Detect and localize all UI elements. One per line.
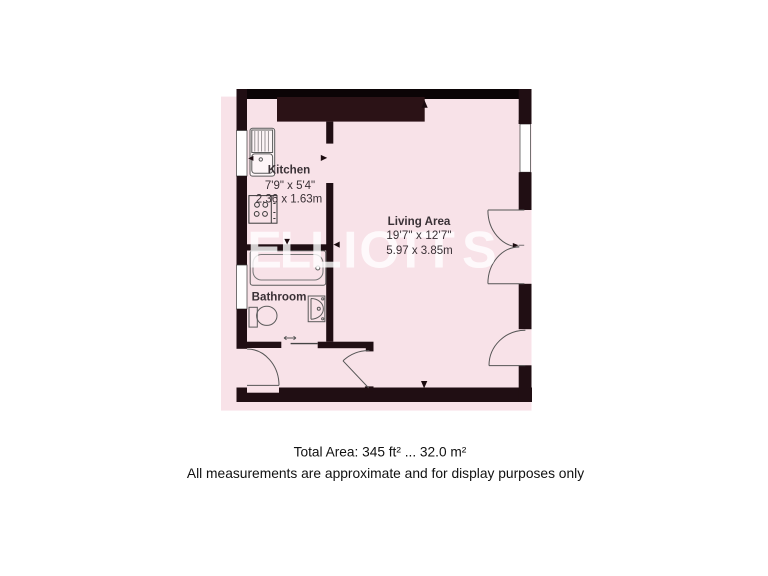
svg-text:2.36 x 1.63m: 2.36 x 1.63m xyxy=(256,194,322,206)
svg-text:Kitchen: Kitchen xyxy=(268,164,311,177)
svg-text:All measurements are approxima: All measurements are approximate and for… xyxy=(187,466,584,481)
svg-text:S: S xyxy=(462,221,497,279)
svg-text:Living Area: Living Area xyxy=(388,215,451,228)
svg-text:Total Area: 345 ft² ... 32.0 m: Total Area: 345 ft² ... 32.0 m² xyxy=(294,445,467,460)
svg-text:I: I xyxy=(343,221,357,279)
svg-text:E: E xyxy=(247,221,282,279)
svg-text:19'7" x 12'7": 19'7" x 12'7" xyxy=(386,230,451,242)
svg-text:7'9" x 5'4": 7'9" x 5'4" xyxy=(265,180,315,192)
svg-text:L: L xyxy=(280,221,312,279)
svg-text:Bathroom: Bathroom xyxy=(252,290,307,303)
svg-text:5.97 x 3.85m: 5.97 x 3.85m xyxy=(386,245,452,257)
svg-text:L: L xyxy=(310,221,342,279)
